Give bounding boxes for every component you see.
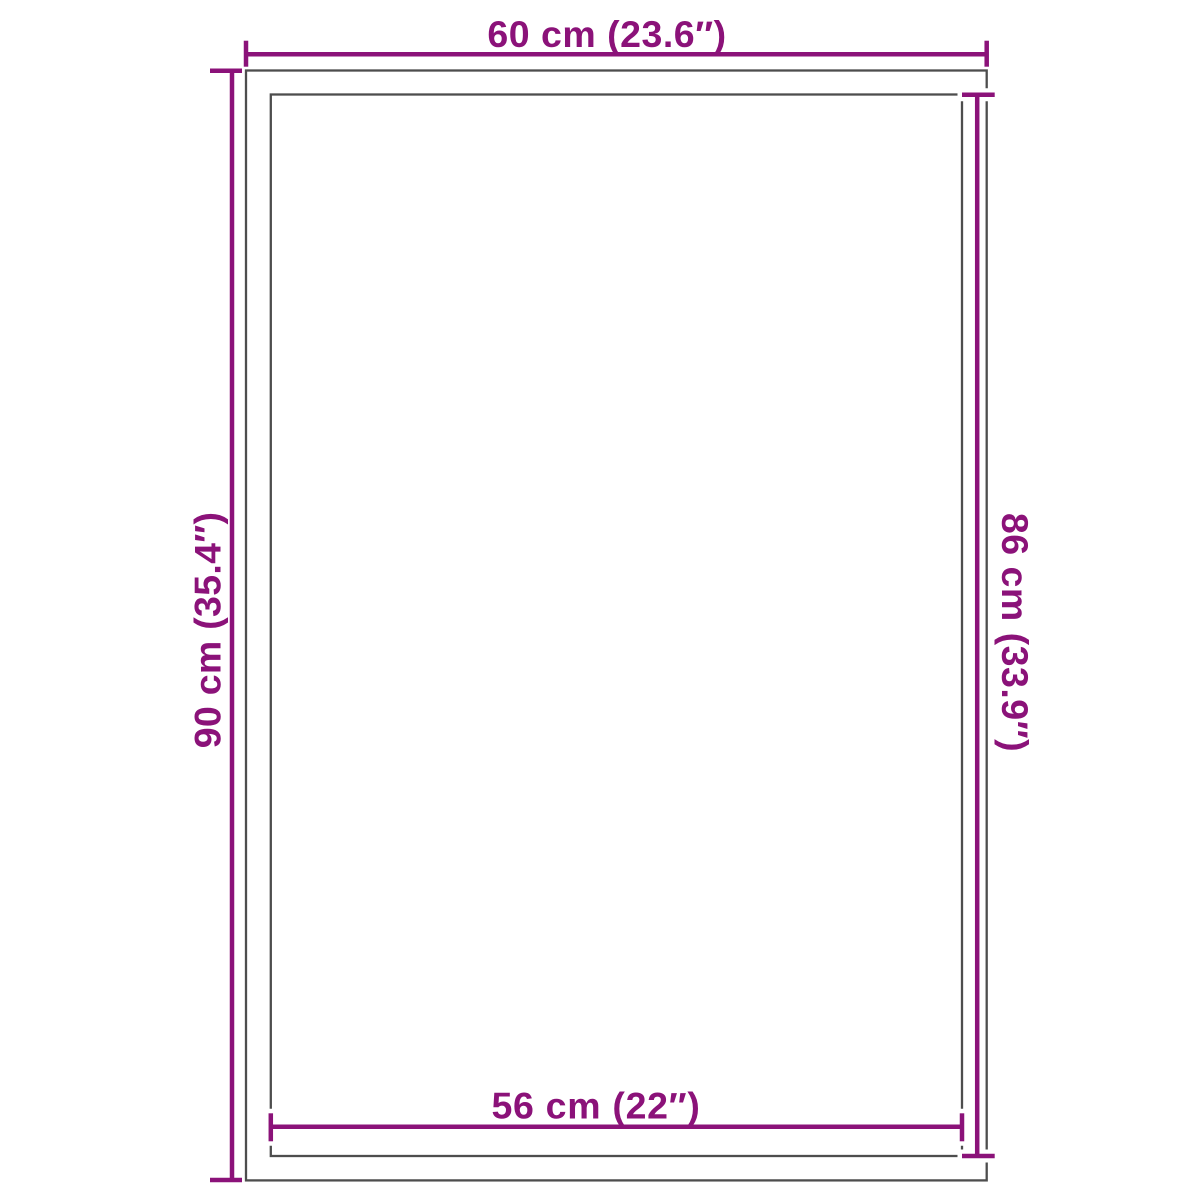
svg-text:86 cm (33.9″): 86 cm (33.9″) (994, 513, 1036, 752)
svg-text:90 cm (35.4″): 90 cm (35.4″) (187, 512, 229, 749)
svg-text:56 cm (22″): 56 cm (22″) (491, 1085, 700, 1127)
svg-text:60 cm (23.6″): 60 cm (23.6″) (487, 13, 726, 55)
